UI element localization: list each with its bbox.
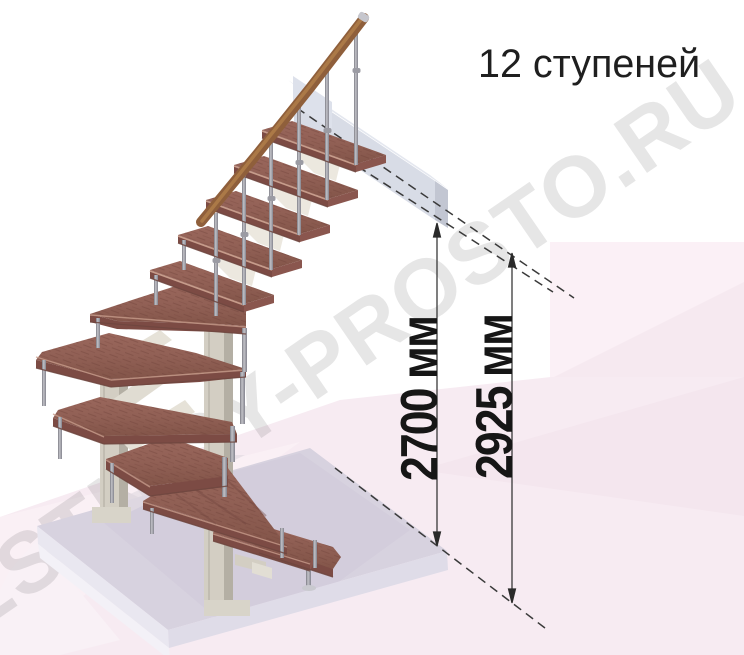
svg-text:2700 мм: 2700 мм — [391, 317, 449, 481]
svg-text:12 ступеней: 12 ступеней — [478, 42, 700, 86]
svg-text:2925 мм: 2925 мм — [466, 315, 524, 479]
